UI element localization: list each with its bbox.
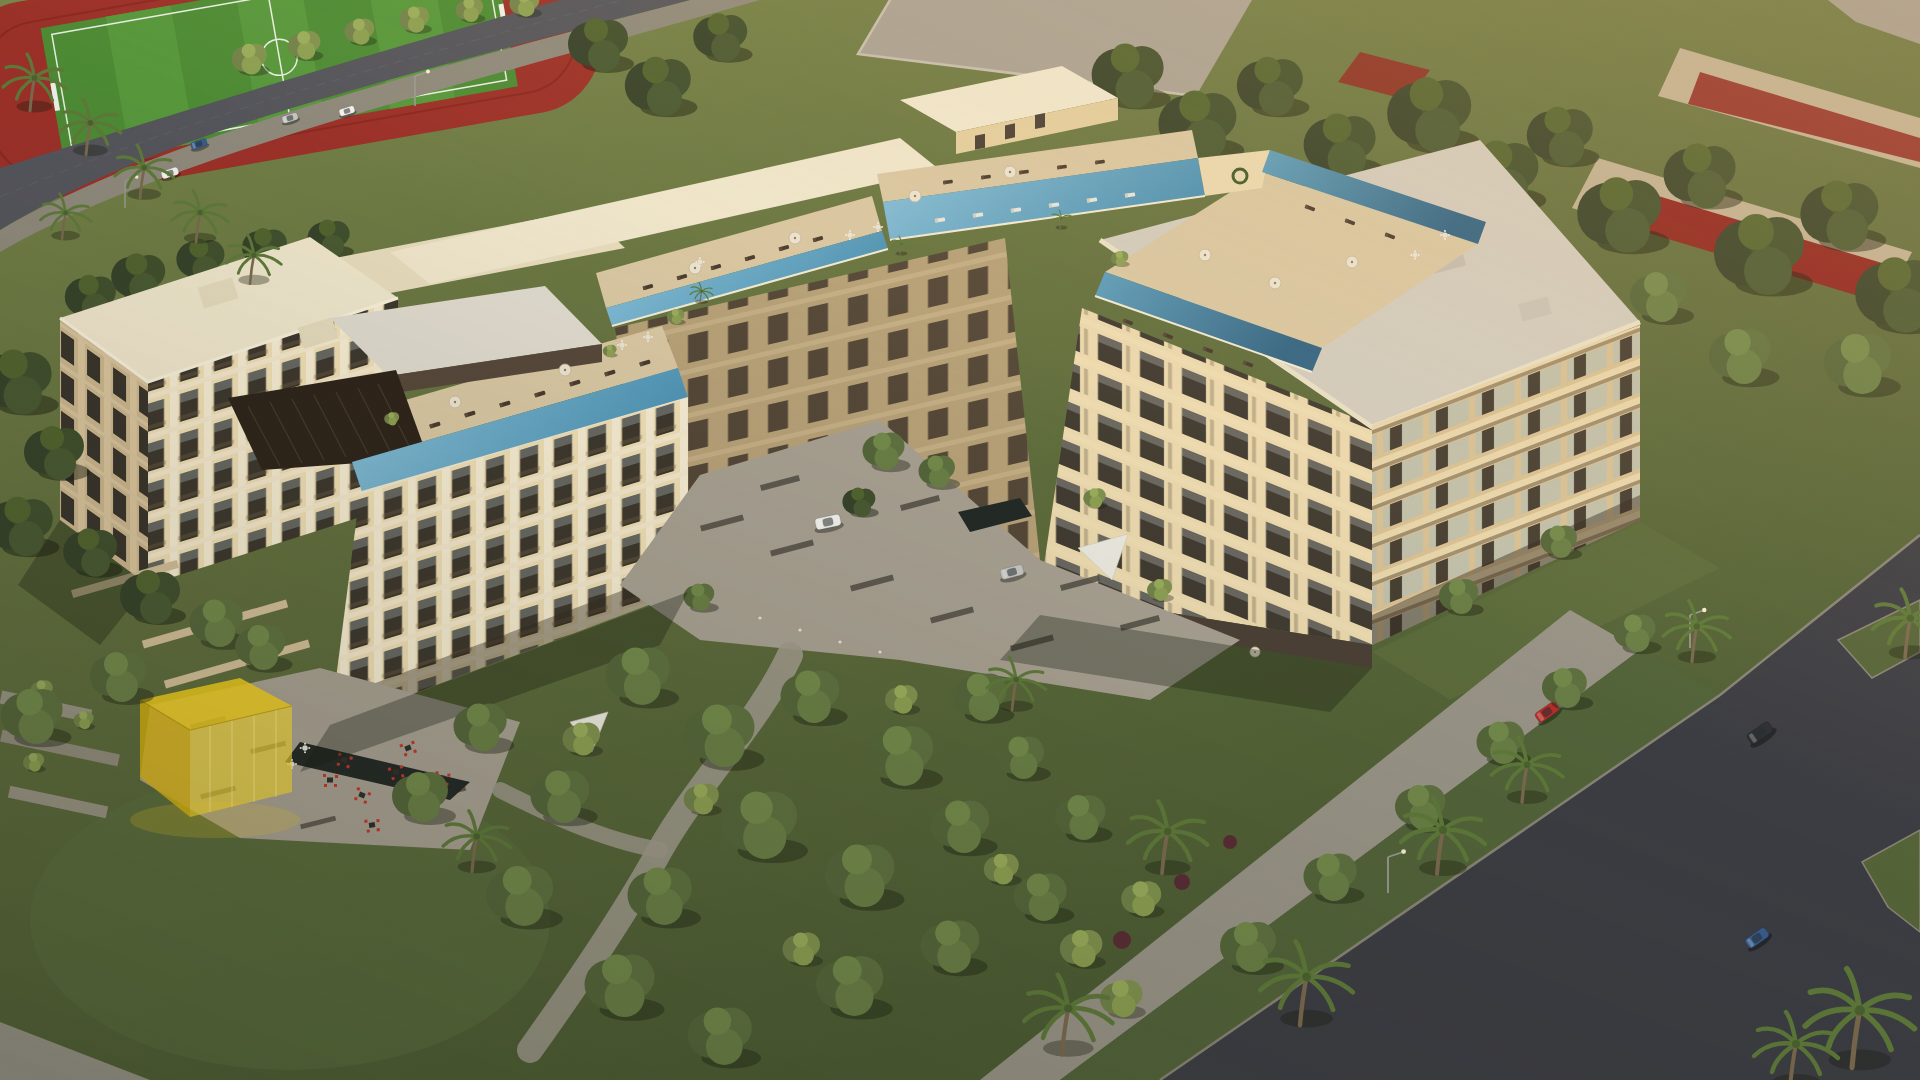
aerial-render-canvas <box>0 0 1920 1080</box>
aerial-render <box>0 0 1920 1080</box>
vignette-overlay <box>0 0 1920 1080</box>
